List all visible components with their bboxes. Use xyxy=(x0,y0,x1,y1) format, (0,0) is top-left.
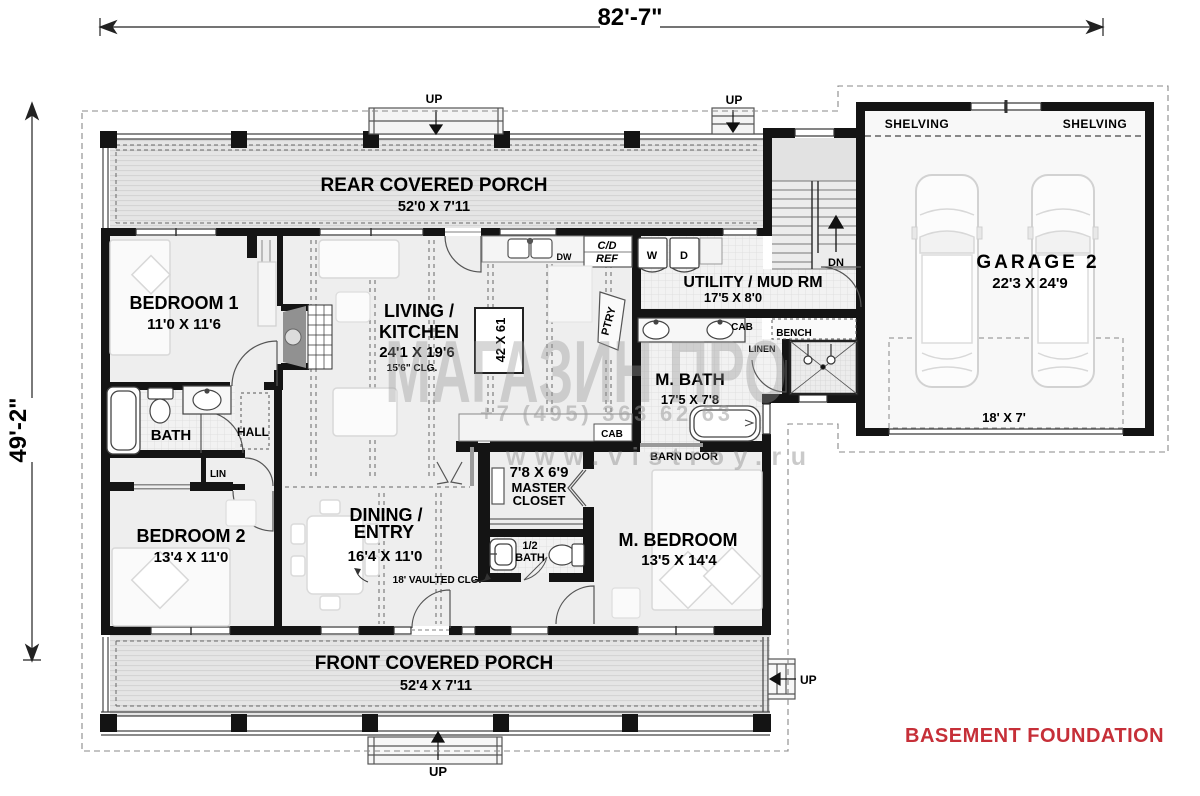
svg-text:13'4 X 11'0: 13'4 X 11'0 xyxy=(154,549,229,566)
svg-text:LIN: LIN xyxy=(210,469,226,480)
svg-text:GARAGE 2: GARAGE 2 xyxy=(976,252,1099,273)
svg-text:CAB: CAB xyxy=(601,429,623,440)
svg-text:52'0 X 7'11: 52'0 X 7'11 xyxy=(398,199,470,215)
svg-text:C/D: C/D xyxy=(598,240,617,252)
svg-text:HALL: HALL xyxy=(237,425,269,439)
svg-text:DW: DW xyxy=(557,252,572,262)
svg-text:SHELVING: SHELVING xyxy=(1063,117,1127,131)
svg-text:ENTRY: ENTRY xyxy=(354,522,414,542)
svg-text:18' X 7': 18' X 7' xyxy=(982,410,1026,425)
svg-text:17'5 X 8'0: 17'5 X 8'0 xyxy=(704,290,762,305)
svg-text:UP: UP xyxy=(426,92,443,106)
svg-text:FRONT COVERED PORCH: FRONT COVERED PORCH xyxy=(315,653,554,674)
svg-text:49'-2": 49'-2" xyxy=(5,397,32,462)
svg-text:52'4 X 7'11: 52'4 X 7'11 xyxy=(400,678,472,694)
svg-text:82'-7": 82'-7" xyxy=(597,4,662,31)
svg-text:1/2: 1/2 xyxy=(522,540,537,552)
svg-text:BASEMENT FOUNDATION: BASEMENT FOUNDATION xyxy=(905,725,1164,747)
svg-text:BATH: BATH xyxy=(515,552,545,564)
svg-text:16'4 X 11'0: 16'4 X 11'0 xyxy=(348,548,423,565)
svg-text:CLOSET: CLOSET xyxy=(513,493,566,508)
svg-text:D: D xyxy=(680,250,688,262)
svg-text:UP: UP xyxy=(726,93,743,107)
svg-text:REF: REF xyxy=(596,253,618,265)
svg-text:DN: DN xyxy=(828,257,844,269)
svg-text:UP: UP xyxy=(800,673,817,687)
svg-text:M. BEDROOM: M. BEDROOM xyxy=(619,530,738,550)
svg-text:UP: UP xyxy=(429,764,447,779)
svg-text:11'0 X 11'6: 11'0 X 11'6 xyxy=(147,316,221,333)
svg-text:BEDROOM 1: BEDROOM 1 xyxy=(129,293,238,313)
svg-text:BATH: BATH xyxy=(151,427,192,444)
svg-text:UTILITY / MUD RM: UTILITY / MUD RM xyxy=(683,274,822,291)
svg-text:BEDROOM 2: BEDROOM 2 xyxy=(136,526,245,546)
svg-text:SHELVING: SHELVING xyxy=(885,117,949,131)
svg-text:+7 (495) 363 62 63: +7 (495) 363 62 63 xyxy=(480,401,730,426)
svg-text:22'3 X 24'9: 22'3 X 24'9 xyxy=(992,275,1068,292)
svg-text:LIVING /: LIVING / xyxy=(384,301,454,321)
svg-text:W: W xyxy=(647,250,658,262)
svg-text:13'5 X 14'4: 13'5 X 14'4 xyxy=(641,552,717,569)
svg-text:REAR COVERED PORCH: REAR COVERED PORCH xyxy=(321,175,548,196)
svg-text:18' VAULTED CLG.: 18' VAULTED CLG. xyxy=(393,575,482,586)
svg-text:www.vistroy.ru: www.vistroy.ru xyxy=(505,443,806,471)
